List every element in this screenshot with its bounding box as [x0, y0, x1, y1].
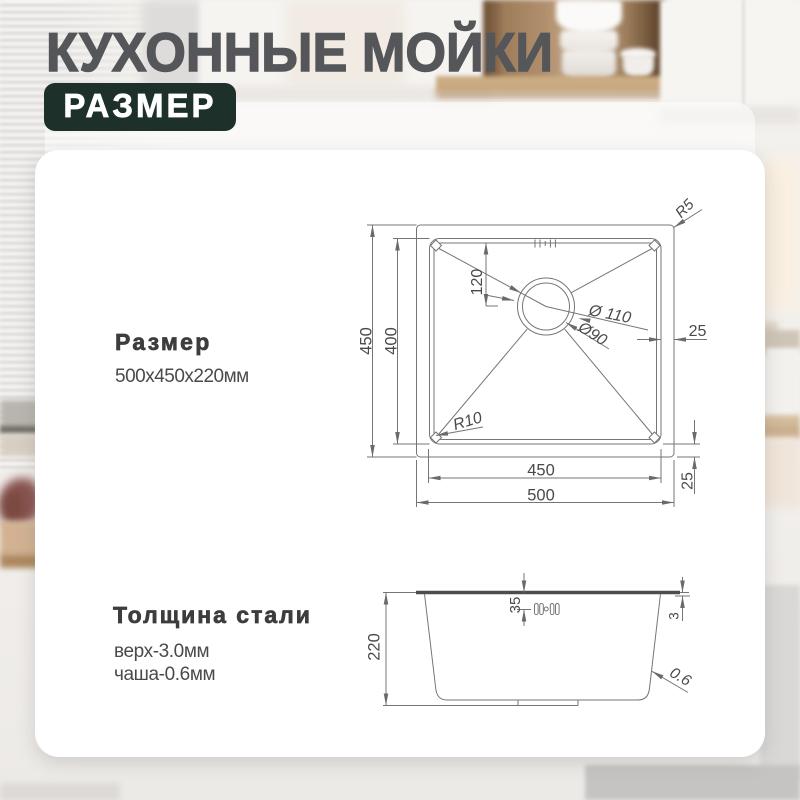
svg-text:450: 450 — [358, 327, 376, 355]
svg-text:120: 120 — [469, 269, 486, 296]
svg-text:3: 3 — [667, 612, 682, 620]
svg-text:0.6: 0.6 — [667, 664, 694, 690]
svg-text:450: 450 — [527, 462, 555, 480]
svg-text:25: 25 — [689, 323, 707, 340]
svg-text:35: 35 — [507, 597, 524, 614]
svg-text:500: 500 — [527, 487, 555, 505]
svg-text:220: 220 — [366, 633, 384, 661]
svg-text:400: 400 — [383, 327, 401, 355]
svg-text:Ø 110: Ø 110 — [586, 302, 632, 327]
svg-text:Ø90: Ø90 — [574, 318, 610, 349]
svg-text:25: 25 — [680, 472, 697, 490]
svg-text:R5: R5 — [672, 196, 698, 222]
